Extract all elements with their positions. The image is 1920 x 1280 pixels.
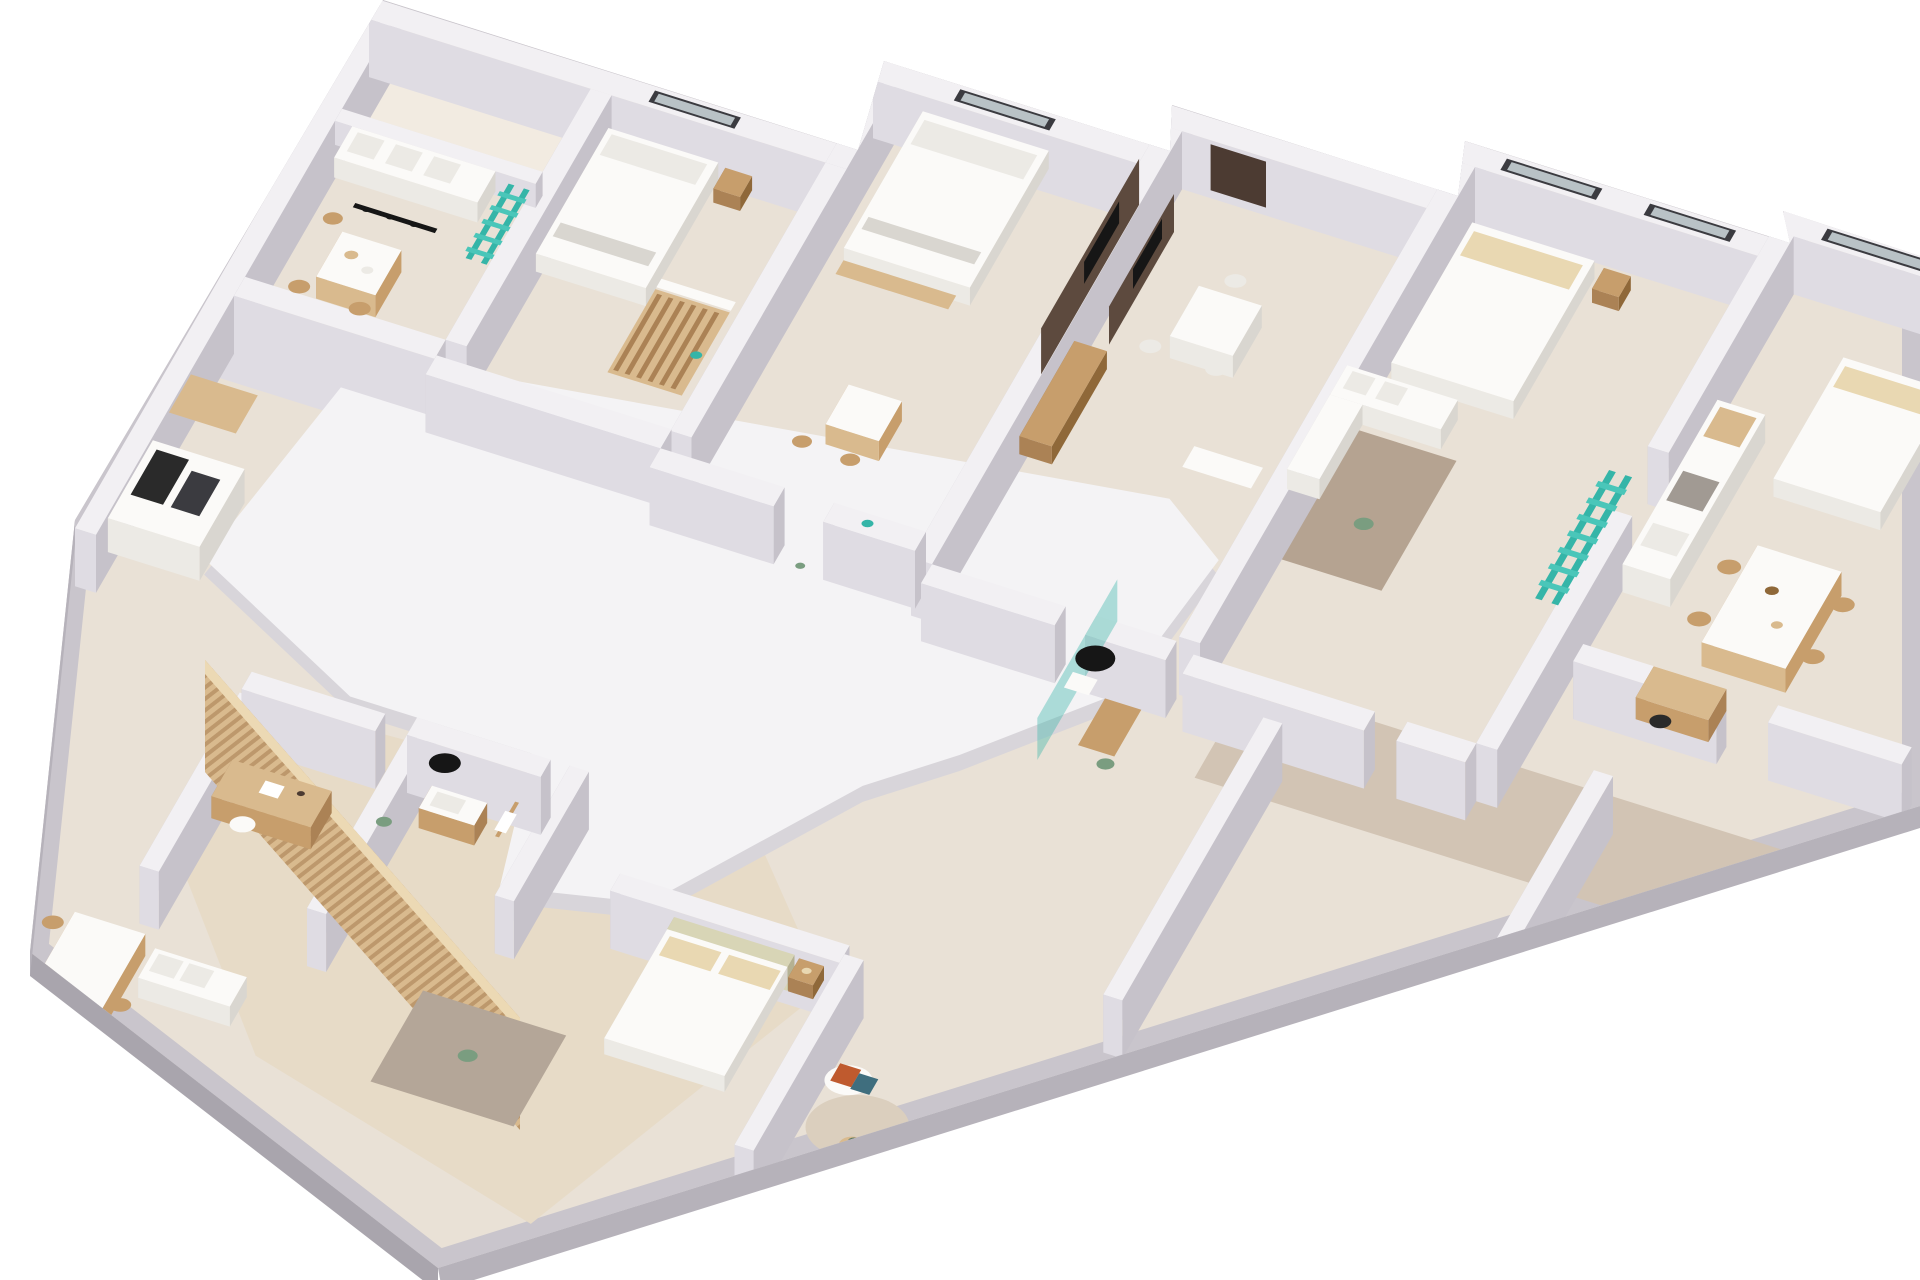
decor xyxy=(862,520,874,527)
chair xyxy=(1831,597,1855,612)
wall-face xyxy=(1429,1056,1448,1120)
plant xyxy=(1096,758,1114,769)
partition-wall-face xyxy=(1476,743,1497,808)
outer-wall-left-face xyxy=(75,528,96,593)
chair xyxy=(288,280,310,294)
chair xyxy=(1224,274,1246,288)
chair xyxy=(1205,362,1227,376)
chair xyxy=(349,302,371,316)
cushion xyxy=(898,1144,926,1166)
office-chair xyxy=(230,816,256,832)
decor xyxy=(690,351,702,358)
plant xyxy=(458,1050,478,1062)
pendant-light xyxy=(410,222,418,227)
desk-chair xyxy=(1649,715,1671,729)
plant xyxy=(1354,518,1374,530)
black-round-table xyxy=(1075,645,1115,671)
plant xyxy=(376,817,392,827)
round-mirror xyxy=(429,753,461,773)
chair xyxy=(42,916,64,930)
wall-face xyxy=(140,866,159,930)
chair xyxy=(1801,649,1825,664)
floor-plan-canvas xyxy=(0,0,1920,1280)
bowl xyxy=(1765,586,1779,595)
lamp xyxy=(802,968,812,974)
pendant-light xyxy=(362,207,370,212)
bowl xyxy=(1771,621,1783,628)
chair xyxy=(792,435,812,447)
chair xyxy=(1139,340,1161,354)
desk-lamp xyxy=(297,791,305,796)
wall-face xyxy=(1103,995,1122,1059)
chair xyxy=(109,998,131,1012)
bowl xyxy=(344,251,358,260)
chair xyxy=(1717,560,1741,575)
chair xyxy=(840,454,860,466)
wall-face xyxy=(307,908,326,972)
plant xyxy=(795,563,805,569)
floor-plan-render xyxy=(0,0,1920,1280)
pendant-light xyxy=(386,215,394,220)
chair xyxy=(1687,612,1711,627)
building-interior xyxy=(18,0,1920,1268)
chair xyxy=(323,212,343,224)
wall-face xyxy=(495,895,514,959)
plate xyxy=(361,266,373,273)
